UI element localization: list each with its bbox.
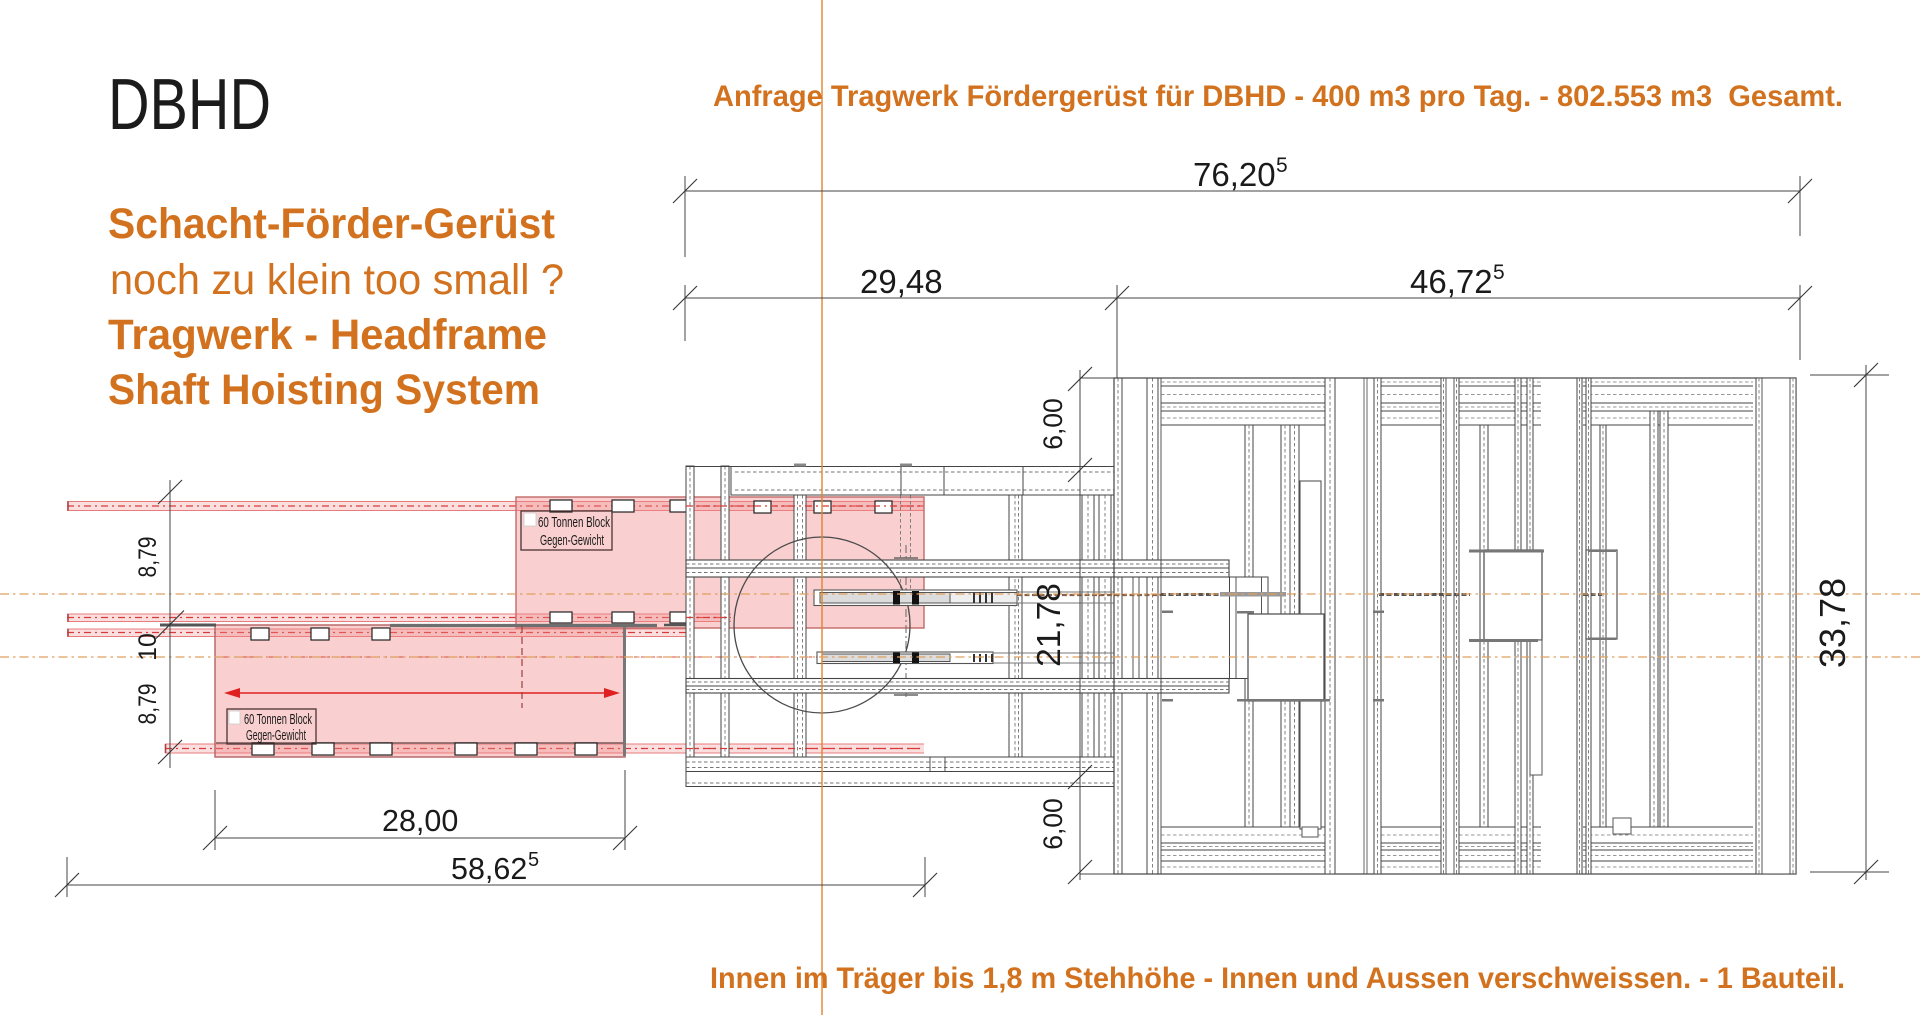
- svg-text:noch zu klein too small ?: noch zu klein too small ?: [110, 256, 564, 304]
- svg-text:76,20: 76,20: [1193, 156, 1276, 193]
- svg-text:33,78: 33,78: [1812, 578, 1853, 668]
- svg-text:Tragwerk - Headframe: Tragwerk - Headframe: [108, 311, 547, 359]
- svg-text:28,00: 28,00: [382, 804, 458, 838]
- svg-text:58,62: 58,62: [451, 852, 527, 886]
- svg-text:5: 5: [1493, 261, 1505, 284]
- svg-text:Gegen-Gewicht: Gegen-Gewicht: [540, 532, 605, 549]
- svg-text:5: 5: [528, 849, 539, 871]
- svg-text:21,78: 21,78: [1031, 583, 1068, 667]
- svg-text:6,00: 6,00: [1038, 398, 1068, 450]
- svg-text:DBHD: DBHD: [108, 65, 271, 145]
- svg-text:Anfrage Tragwerk Fördergerüst: Anfrage Tragwerk Fördergerüst für DBHD -…: [713, 80, 1843, 113]
- svg-text:10: 10: [134, 633, 162, 661]
- svg-text:6,00: 6,00: [1038, 798, 1068, 850]
- svg-text:8,79: 8,79: [134, 684, 162, 725]
- svg-text:5: 5: [1276, 154, 1288, 177]
- svg-text:Gegen-Gewicht: Gegen-Gewicht: [246, 727, 306, 744]
- svg-text:8,79: 8,79: [134, 537, 162, 578]
- svg-text:29,48: 29,48: [860, 263, 943, 300]
- svg-text:60 Tonnen Block: 60 Tonnen Block: [244, 711, 312, 728]
- svg-text:60 Tonnen Block: 60 Tonnen Block: [538, 514, 610, 531]
- svg-text:Innen im Träger bis 1,8 m Steh: Innen im Träger bis 1,8 m Stehhöhe - Inn…: [710, 962, 1845, 995]
- svg-text:Shaft Hoisting System: Shaft Hoisting System: [108, 366, 540, 414]
- svg-text:46,72: 46,72: [1410, 263, 1493, 300]
- svg-text:Schacht-Förder-Gerüst: Schacht-Förder-Gerüst: [108, 200, 555, 248]
